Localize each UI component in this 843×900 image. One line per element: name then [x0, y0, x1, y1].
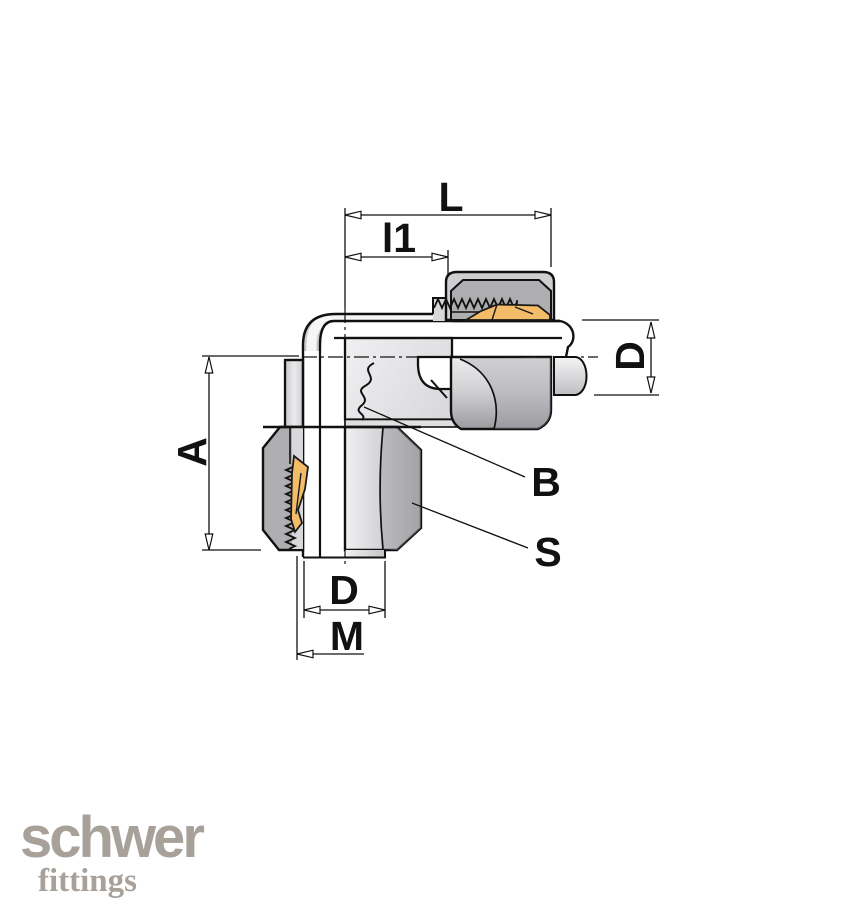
- ferrule-bottom: [291, 456, 308, 532]
- part-label-S: S: [534, 529, 561, 575]
- arrow-D-right-up: [647, 322, 655, 338]
- dim-label-D-bottom: D: [329, 567, 359, 613]
- body-male-end-bottom: [285, 360, 303, 427]
- dimension-lines: [202, 208, 659, 660]
- tube-bottom-end-exterior: [345, 550, 385, 558]
- arrow-D-bottom-right: [369, 606, 385, 614]
- arrow-L-right: [535, 211, 551, 219]
- arrow-l1-left: [345, 253, 361, 261]
- arrow-D-bottom-left: [304, 606, 320, 614]
- leader-S: [412, 503, 528, 548]
- arrow-A-up: [205, 357, 213, 373]
- dim-label-A: A: [169, 437, 215, 467]
- dim-label-l1: l1: [382, 215, 416, 261]
- body-exterior: [345, 338, 468, 420]
- compression-nut-right: [433, 272, 587, 429]
- dim-label-D-right: D: [607, 341, 653, 371]
- arrow-l1-right: [432, 253, 448, 261]
- tube-right-end-exterior: [554, 357, 587, 395]
- arrow-L-left: [345, 211, 361, 219]
- fitting-diagram: L l1 D A B S D M schwer fittings: [0, 0, 843, 900]
- arrow-M-left: [297, 650, 313, 658]
- logo-fittings: fittings: [38, 863, 137, 899]
- nut-bottom-hex-shade: [380, 427, 421, 550]
- arrow-A-down: [205, 534, 213, 550]
- arrow-D-right-down: [647, 377, 655, 393]
- part-label-B: B: [531, 459, 561, 505]
- logo-schwer: schwer: [20, 805, 204, 870]
- brand-logo: schwer fittings: [20, 805, 204, 899]
- dim-label-M: M: [330, 613, 364, 659]
- dim-label-L: L: [438, 174, 463, 220]
- drawing-page: L l1 D A B S D M schwer fittings: [0, 0, 843, 900]
- compression-nut-bottom: [263, 427, 421, 558]
